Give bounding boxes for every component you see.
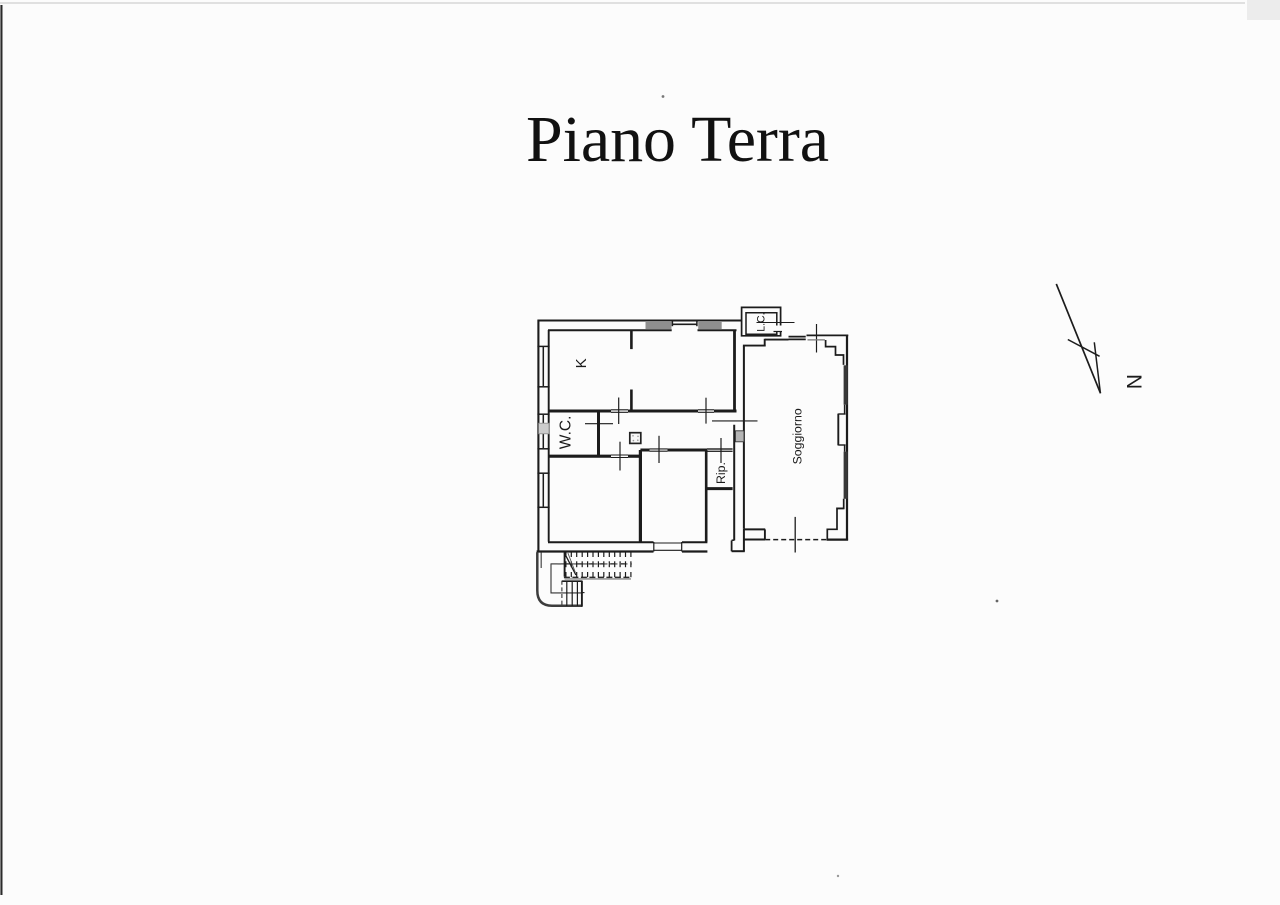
svg-text:N: N bbox=[1124, 374, 1147, 389]
svg-text:Soggiorno: Soggiorno bbox=[791, 408, 805, 464]
svg-text:Piano Terra: Piano Terra bbox=[526, 103, 829, 176]
svg-text:L.C.: L.C. bbox=[755, 312, 767, 331]
svg-text:Rip.: Rip. bbox=[714, 462, 728, 484]
svg-text:K: K bbox=[573, 358, 590, 368]
svg-text:W.C.: W.C. bbox=[557, 416, 574, 450]
